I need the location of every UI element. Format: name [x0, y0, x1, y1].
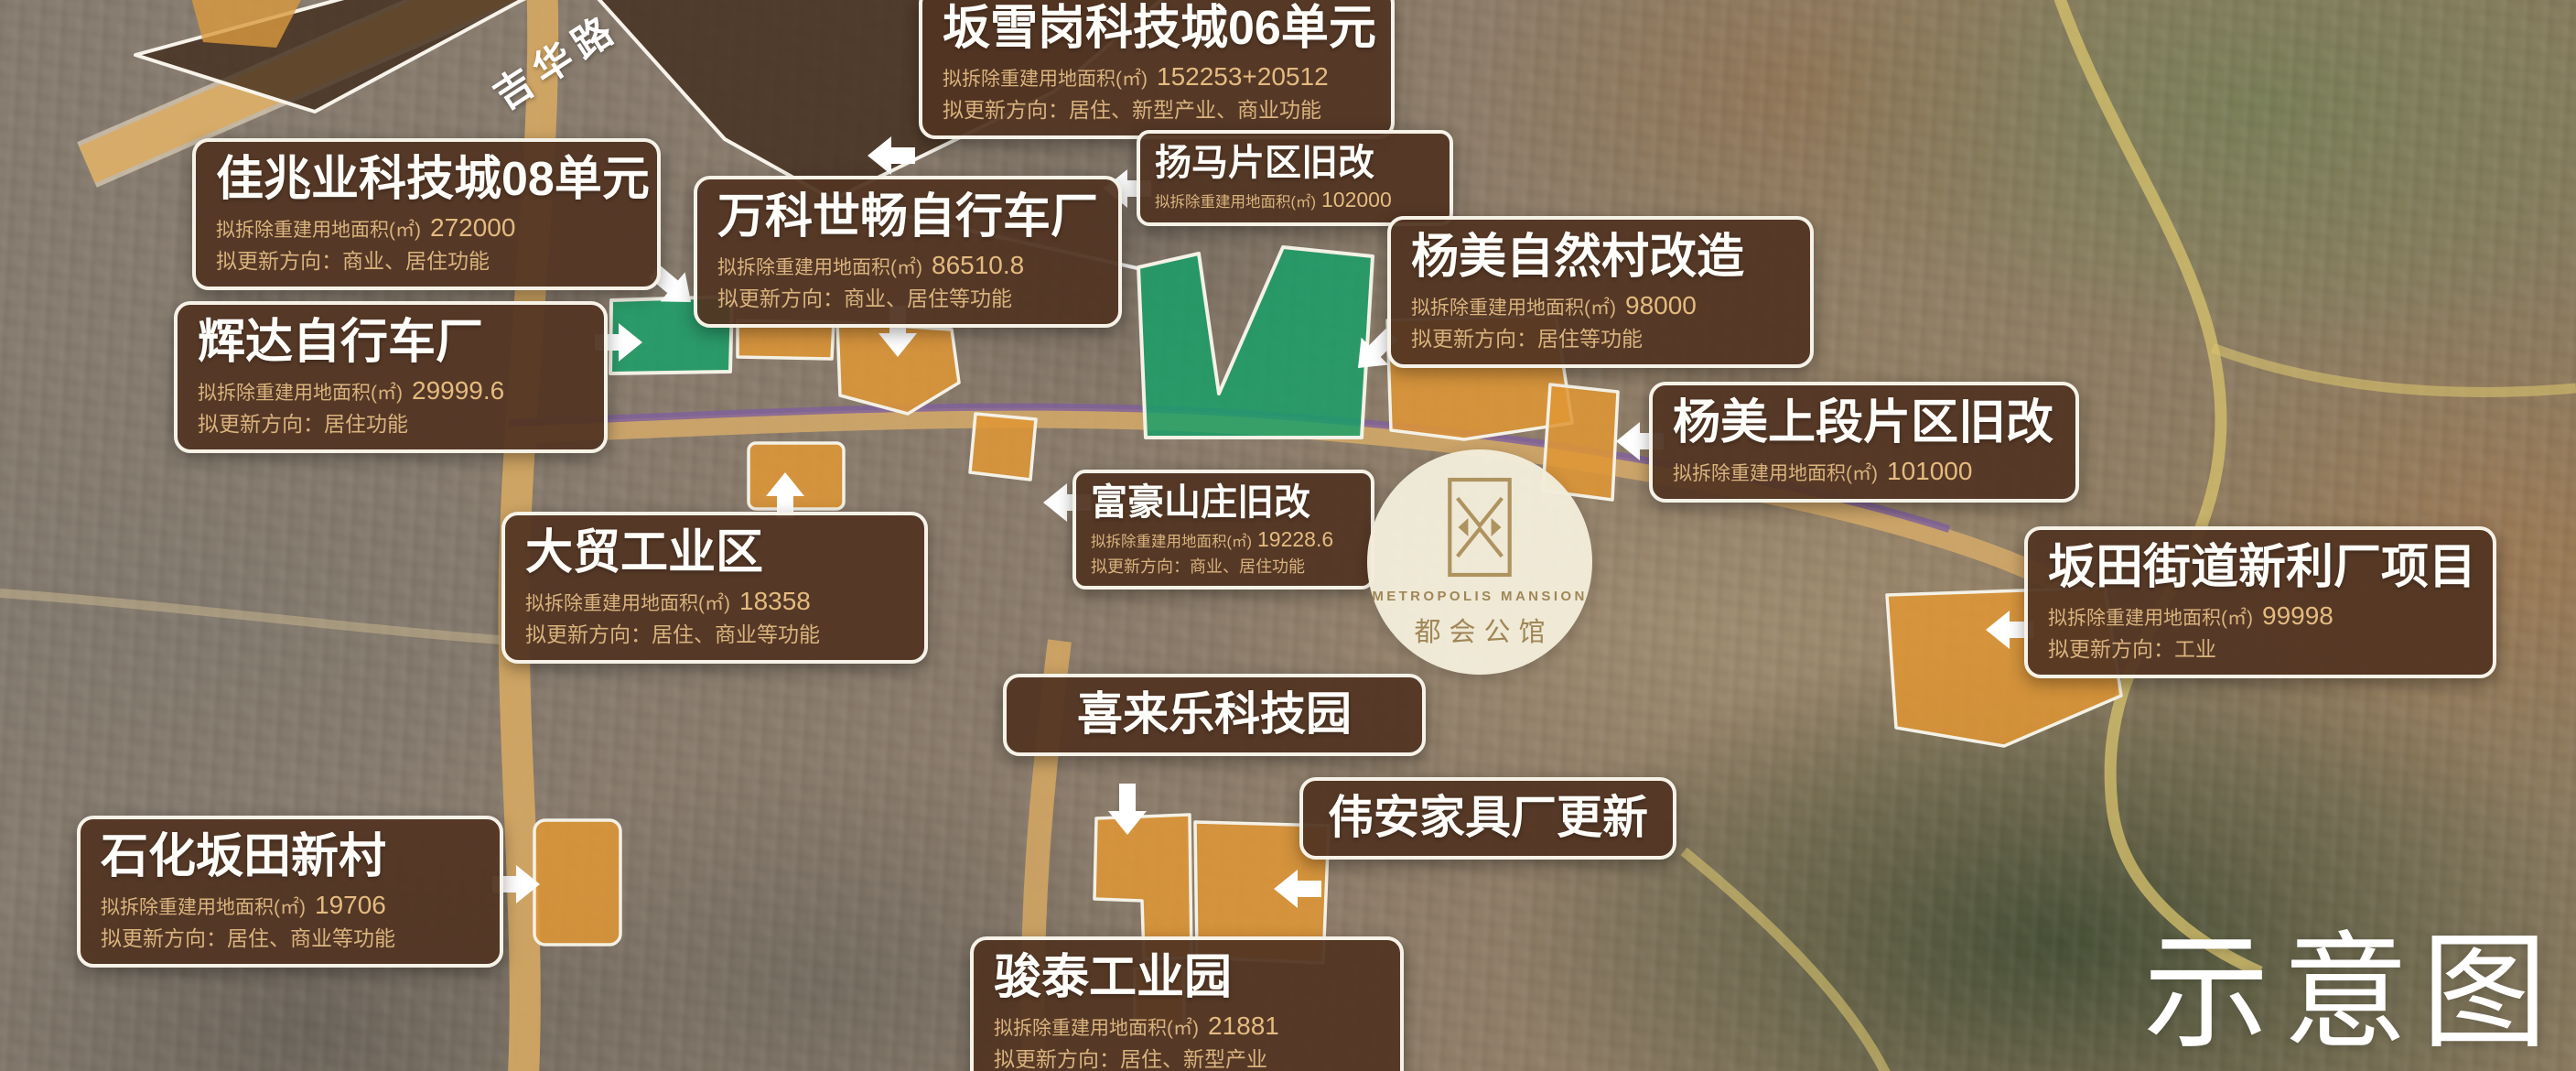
- callout-title: 万科世畅自行车厂: [717, 190, 1098, 245]
- area-line: 拟拆除重建用地面积(㎡)86510.8: [717, 249, 1098, 282]
- callout-damao: 大贸工业区 拟拆除重建用地面积(㎡)18358 拟更新方向：居住、商业等功能: [501, 512, 928, 664]
- callout-shihua: 石化坂田新村 拟拆除重建用地面积(㎡)19706 拟更新方向：居住、商业等功能: [77, 816, 503, 968]
- zone-green-yangmei: [1138, 247, 1373, 438]
- area-line: 拟拆除重建用地面积(㎡)98000: [1411, 289, 1790, 322]
- callout-title: 坂雪岗科技城06单元: [943, 2, 1371, 57]
- area-value: 19228.6: [1257, 527, 1333, 551]
- callout-title: 杨美上段片区旧改: [1673, 396, 2055, 451]
- area-label: 拟拆除重建用地面积(㎡): [994, 1018, 1199, 1039]
- direction-line: 拟更新方向：商业、居住功能: [216, 248, 637, 276]
- area-value: 21881: [1208, 1011, 1279, 1040]
- area-line: 拟拆除重建用地面积(㎡)21881: [994, 1010, 1380, 1043]
- direction-line: 拟更新方向：居住功能: [198, 411, 584, 438]
- road-east: [2057, 0, 2260, 972]
- callout-xilaile: 喜来乐科技园: [1003, 674, 1426, 756]
- callout-title: 伟安家具厂更新: [1323, 792, 1653, 845]
- area-value: 99998: [2262, 601, 2333, 630]
- road-east-branch: [2213, 348, 2576, 392]
- area-value: 152253+20512: [1157, 62, 1329, 91]
- area-line: 拟拆除重建用地面积(㎡)19706: [101, 889, 480, 922]
- area-value: 102000: [1321, 188, 1392, 211]
- direction-line: 拟更新方向：居住、新型产业、商业功能: [943, 97, 1371, 124]
- callout-title: 坂田街道新利厂项目: [2048, 541, 2473, 596]
- zone-orange-fuhao: [970, 414, 1036, 480]
- callout-title: 辉达自行车厂: [198, 316, 584, 371]
- area-line: 拟拆除重建用地面积(㎡)101000: [1673, 455, 2055, 488]
- callout-juntai: 骏泰工业园 拟拆除重建用地面积(㎡)21881 拟更新方向：居住、新型产业: [970, 936, 1404, 1071]
- callout-yangma: 扬马片区旧改 拟拆除重建用地面积(㎡)102000: [1137, 130, 1453, 226]
- callout-fuhao: 富豪山庄旧改 拟拆除重建用地面积(㎡)19228.6 拟更新方向：商业、居住功能: [1072, 470, 1374, 590]
- area-label: 拟拆除重建用地面积(㎡): [717, 257, 922, 278]
- callout-banxuegang: 坂雪岗科技城06单元 拟拆除重建用地面积(㎡)152253+20512 拟更新方…: [919, 0, 1395, 139]
- area-label: 拟拆除重建用地面积(㎡): [1673, 463, 1878, 484]
- callout-title: 杨美自然村改造: [1411, 231, 1790, 286]
- area-label: 拟拆除重建用地面积(㎡): [198, 383, 403, 404]
- direction-line: 拟更新方向：居住、商业等功能: [525, 622, 904, 649]
- area-value: 98000: [1625, 291, 1697, 319]
- callout-huida: 辉达自行车厂 拟拆除重建用地面积(㎡)29999.6 拟更新方向：居住功能: [174, 301, 608, 453]
- direction-line: 拟更新方向：居住、新型产业: [994, 1046, 1380, 1071]
- callout-wanke: 万科世畅自行车厂 拟拆除重建用地面积(㎡)86510.8 拟更新方向：商业、居住…: [694, 176, 1122, 328]
- area-label: 拟拆除重建用地面积(㎡): [525, 593, 730, 614]
- area-value: 86510.8: [932, 251, 1024, 279]
- area-value: 29999.6: [412, 376, 504, 405]
- logo-mark-icon: [1441, 475, 1518, 579]
- callout-title: 喜来乐科技园: [1027, 688, 1402, 741]
- logo-name-en: METROPOLIS MANSION: [1372, 589, 1587, 604]
- area-value: 272000: [430, 213, 515, 242]
- watermark-shiyitu: 示意图: [2143, 890, 2560, 1071]
- area-line: 拟拆除重建用地面积(㎡)18358: [525, 585, 904, 618]
- callout-title: 富豪山庄旧改: [1091, 481, 1356, 524]
- area-line: 拟拆除重建用地面积(㎡)102000: [1155, 187, 1435, 214]
- callout-jiazhaoye: 佳兆业科技城08单元 拟拆除重建用地面积(㎡)272000 拟更新方向：商业、居…: [192, 138, 661, 290]
- road-southeast: [1684, 851, 1887, 1071]
- satellite-planning-map: 吉华路 坂雪岗科技城06单元 拟拆除重建用地面积(㎡)152253+20512 …: [0, 0, 2576, 1071]
- callout-xinli: 坂田街道新利厂项目 拟拆除重建用地面积(㎡)99998 拟更新方向：工业: [2024, 526, 2496, 678]
- area-label: 拟拆除重建用地面积(㎡): [101, 897, 306, 918]
- zone-orange-shihua: [534, 820, 620, 945]
- metropolis-mansion-logo: METROPOLIS MANSION 都会公馆: [1367, 449, 1592, 675]
- direction-line: 拟更新方向：工业: [2048, 636, 2473, 664]
- area-label: 拟拆除重建用地面积(㎡): [1411, 297, 1616, 319]
- area-label: 拟拆除重建用地面积(㎡): [943, 69, 1148, 90]
- direction-line: 拟更新方向：商业、居住功能: [1091, 557, 1356, 578]
- area-label: 拟拆除重建用地面积(㎡): [1155, 194, 1316, 211]
- area-line: 拟拆除重建用地面积(㎡)272000: [216, 211, 637, 244]
- callout-title: 扬马片区旧改: [1155, 142, 1435, 184]
- area-line: 拟拆除重建用地面积(㎡)152253+20512: [943, 60, 1371, 93]
- area-label: 拟拆除重建用地面积(㎡): [216, 220, 421, 241]
- logo-name-cn: 都会公馆: [1406, 611, 1553, 649]
- zone-orange-damao: [749, 443, 844, 509]
- direction-line: 拟更新方向：居住等功能: [1411, 326, 1790, 353]
- area-label: 拟拆除重建用地面积(㎡): [2048, 608, 2253, 629]
- direction-line: 拟更新方向：商业、居住等功能: [717, 286, 1098, 313]
- area-line: 拟拆除重建用地面积(㎡)19228.6: [1091, 526, 1356, 554]
- area-value: 19706: [315, 891, 386, 919]
- area-value: 18358: [739, 587, 811, 615]
- callout-title: 石化坂田新村: [101, 830, 480, 885]
- area-line: 拟拆除重建用地面积(㎡)99998: [2048, 600, 2473, 633]
- callout-yangmei-upper: 杨美上段片区旧改 拟拆除重建用地面积(㎡)101000: [1649, 382, 2079, 503]
- callout-title: 佳兆业科技城08单元: [216, 153, 637, 208]
- callout-title: 骏泰工业园: [994, 951, 1380, 1006]
- area-value: 101000: [1887, 457, 1972, 485]
- callout-title: 大贸工业区: [525, 526, 904, 581]
- area-label: 拟拆除重建用地面积(㎡): [1091, 534, 1252, 550]
- callout-yangmei-village: 杨美自然村改造 拟拆除重建用地面积(㎡)98000 拟更新方向：居住等功能: [1387, 216, 1814, 368]
- road-west: [0, 593, 512, 641]
- callout-weian: 伟安家具厂更新: [1299, 777, 1676, 860]
- area-line: 拟拆除重建用地面积(㎡)29999.6: [198, 374, 584, 407]
- direction-line: 拟更新方向：居住、商业等功能: [101, 925, 480, 953]
